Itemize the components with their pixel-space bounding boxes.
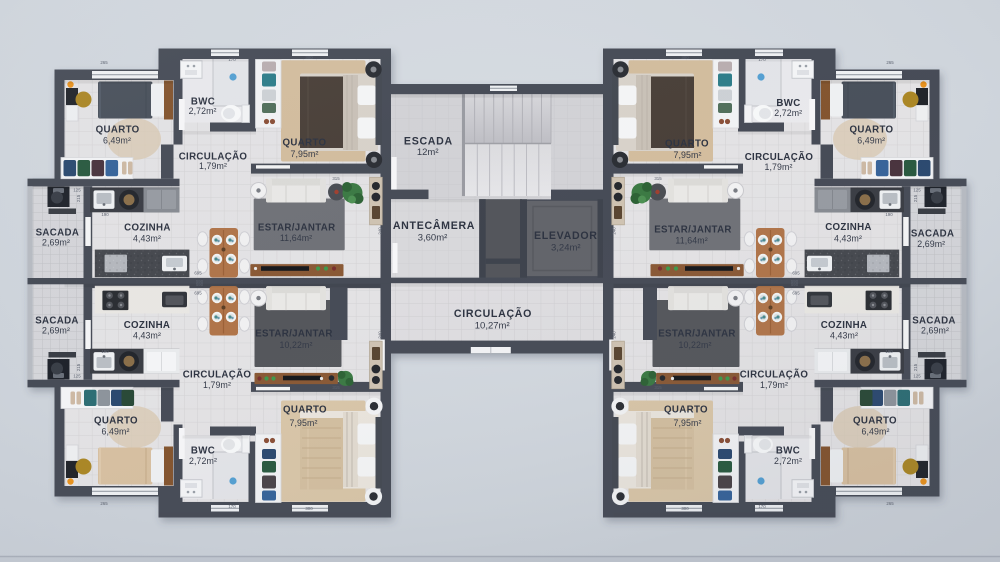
- svg-text:QUARTO: QUARTO: [665, 139, 709, 150]
- svg-text:QUARTO: QUARTO: [853, 416, 897, 427]
- svg-text:315: 315: [654, 385, 662, 390]
- svg-text:QUARTO: QUARTO: [850, 125, 894, 136]
- svg-text:240: 240: [378, 331, 383, 339]
- svg-text:315: 315: [654, 176, 662, 181]
- svg-text:7,95m²: 7,95m²: [290, 418, 318, 428]
- svg-text:170: 170: [228, 57, 236, 62]
- svg-text:170: 170: [758, 504, 766, 509]
- svg-text:315: 315: [332, 176, 340, 181]
- svg-text:12m²: 12m²: [417, 147, 439, 158]
- svg-text:4,43m²: 4,43m²: [834, 234, 862, 244]
- svg-text:170: 170: [758, 57, 766, 62]
- svg-text:2,69m²: 2,69m²: [917, 239, 945, 249]
- svg-text:215: 215: [913, 363, 918, 371]
- svg-text:7,95m²: 7,95m²: [674, 150, 702, 160]
- svg-text:2,69m²: 2,69m²: [921, 325, 949, 335]
- svg-text:1,79m²: 1,79m²: [199, 161, 227, 171]
- svg-text:3,60m²: 3,60m²: [418, 233, 448, 244]
- svg-text:11,64m²: 11,64m²: [675, 236, 707, 246]
- svg-text:125: 125: [913, 188, 921, 193]
- svg-text:300: 300: [305, 506, 313, 511]
- svg-text:6,49m²: 6,49m²: [862, 426, 890, 436]
- svg-text:4,43m²: 4,43m²: [133, 233, 161, 243]
- svg-text:2,72m²: 2,72m²: [774, 108, 802, 118]
- svg-text:695: 695: [792, 270, 800, 275]
- svg-text:ESTAR/JANTAR: ESTAR/JANTAR: [654, 225, 732, 236]
- svg-text:190: 190: [885, 349, 893, 354]
- svg-text:COZINHA: COZINHA: [825, 222, 872, 233]
- svg-text:4,43m²: 4,43m²: [133, 331, 161, 341]
- svg-text:10,27m²: 10,27m²: [475, 320, 510, 331]
- svg-text:695: 695: [194, 270, 202, 275]
- svg-text:190: 190: [101, 349, 109, 354]
- svg-text:315: 315: [332, 385, 340, 390]
- svg-text:ANTECÂMERA: ANTECÂMERA: [393, 219, 475, 232]
- svg-text:10,22m²: 10,22m²: [679, 340, 712, 350]
- svg-text:10,22m²: 10,22m²: [280, 340, 313, 350]
- svg-text:125: 125: [913, 374, 921, 379]
- svg-text:170: 170: [228, 504, 236, 509]
- svg-text:COZINHA: COZINHA: [821, 320, 868, 331]
- svg-text:QUARTO: QUARTO: [283, 138, 327, 149]
- svg-text:11,64m²: 11,64m²: [280, 233, 312, 243]
- svg-text:1,79m²: 1,79m²: [765, 162, 793, 172]
- svg-text:CIRCULAÇÃO: CIRCULAÇÃO: [454, 307, 532, 320]
- svg-text:125: 125: [73, 188, 81, 193]
- svg-text:300: 300: [681, 506, 689, 511]
- svg-text:265: 265: [100, 60, 108, 65]
- svg-text:6,49m²: 6,49m²: [103, 135, 131, 145]
- svg-text:215: 215: [76, 194, 81, 202]
- svg-text:ESCADA: ESCADA: [404, 135, 453, 147]
- svg-text:ESTAR/JANTAR: ESTAR/JANTAR: [255, 328, 333, 339]
- svg-text:7,95m²: 7,95m²: [674, 418, 702, 428]
- svg-text:300: 300: [681, 55, 689, 60]
- svg-text:590: 590: [791, 282, 799, 287]
- svg-text:2,69m²: 2,69m²: [42, 325, 70, 335]
- svg-text:7,95m²: 7,95m²: [291, 149, 319, 159]
- svg-text:CIRCULAÇÃO: CIRCULAÇÃO: [183, 370, 252, 381]
- svg-text:240: 240: [378, 227, 383, 235]
- svg-text:COZINHA: COZINHA: [124, 223, 171, 234]
- svg-text:CIRCULAÇÃO: CIRCULAÇÃO: [740, 370, 809, 381]
- svg-text:QUARTO: QUARTO: [283, 405, 327, 416]
- svg-text:265: 265: [886, 60, 894, 65]
- svg-text:ESTAR/JANTAR: ESTAR/JANTAR: [658, 328, 736, 339]
- svg-text:2,72m²: 2,72m²: [189, 106, 217, 116]
- svg-text:265: 265: [886, 501, 894, 506]
- svg-text:6,49m²: 6,49m²: [857, 135, 885, 145]
- svg-text:695: 695: [194, 291, 202, 296]
- svg-text:190: 190: [885, 212, 893, 217]
- svg-text:ESTAR/JANTAR: ESTAR/JANTAR: [258, 222, 336, 233]
- svg-text:240: 240: [611, 331, 616, 339]
- svg-text:4,43m²: 4,43m²: [830, 331, 858, 341]
- svg-text:QUARTO: QUARTO: [96, 125, 140, 136]
- svg-text:COZINHA: COZINHA: [124, 320, 171, 331]
- svg-text:215: 215: [913, 194, 918, 202]
- svg-text:1,79m²: 1,79m²: [760, 380, 788, 390]
- svg-text:1,79m²: 1,79m²: [203, 380, 231, 390]
- svg-text:ELEVADOR: ELEVADOR: [534, 230, 598, 242]
- svg-text:2,72m²: 2,72m²: [774, 456, 802, 466]
- svg-text:240: 240: [611, 227, 616, 235]
- svg-text:QUARTO: QUARTO: [94, 416, 138, 427]
- svg-text:2,72m²: 2,72m²: [189, 456, 217, 466]
- svg-text:590: 590: [196, 282, 204, 287]
- svg-text:2,69m²: 2,69m²: [42, 237, 70, 247]
- svg-text:695: 695: [792, 291, 800, 296]
- svg-text:265: 265: [100, 501, 108, 506]
- svg-text:215: 215: [76, 363, 81, 371]
- svg-text:6,49m²: 6,49m²: [102, 426, 130, 436]
- svg-text:125: 125: [73, 374, 81, 379]
- svg-text:3,24m²: 3,24m²: [551, 242, 581, 253]
- svg-text:190: 190: [101, 212, 109, 217]
- svg-text:QUARTO: QUARTO: [664, 405, 708, 416]
- svg-text:300: 300: [305, 55, 313, 60]
